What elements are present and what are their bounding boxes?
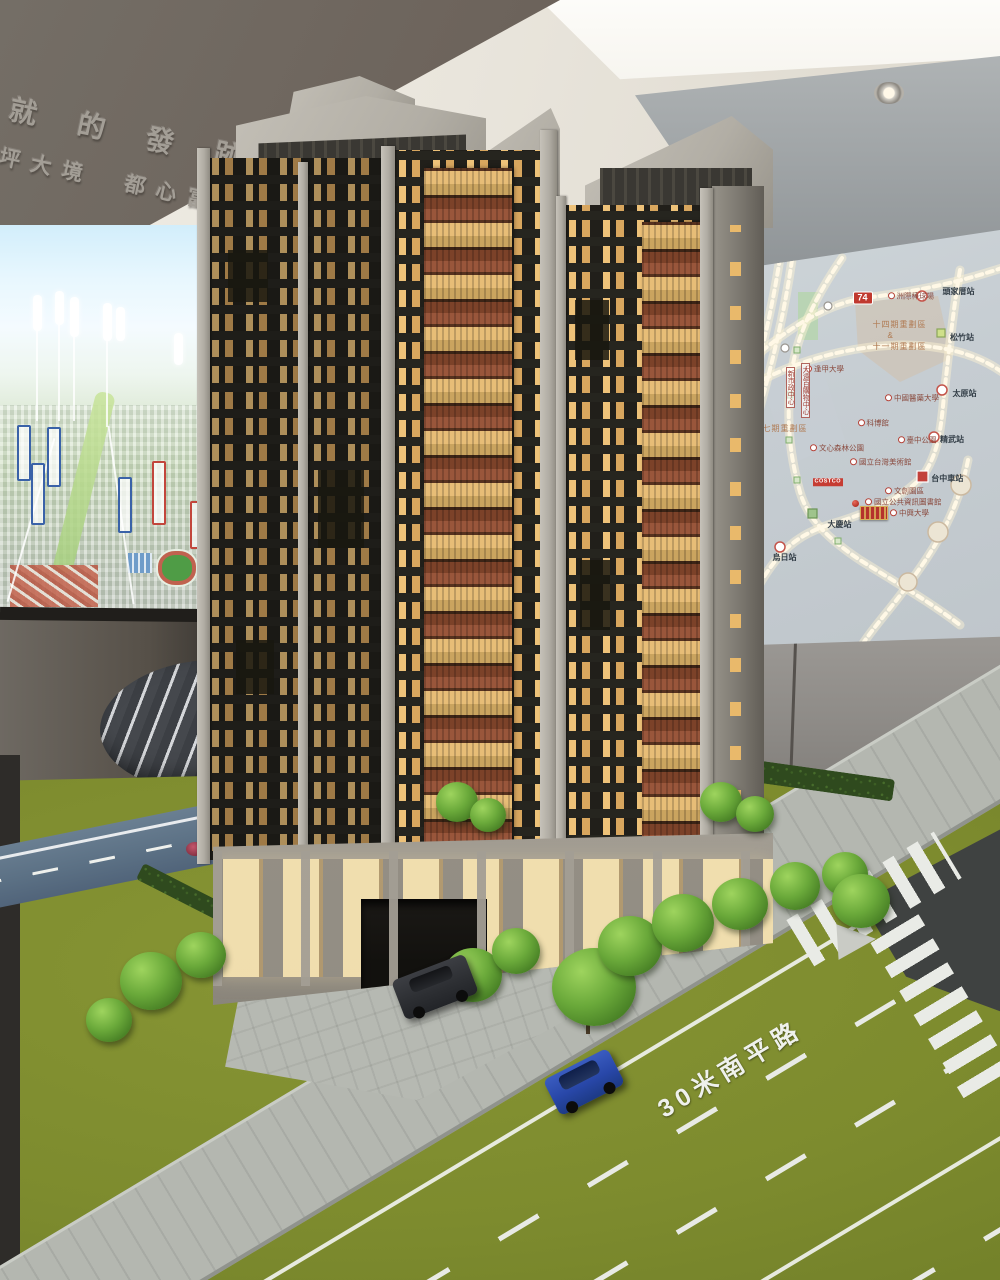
facade-fin xyxy=(540,130,557,864)
red-roof-blocks xyxy=(10,565,98,607)
map-label: 十四期重劃區 xyxy=(873,321,927,329)
map-label: 十一期重劃區 xyxy=(873,343,927,351)
side-window-column xyxy=(730,225,741,860)
map-label: 文心森林公園 xyxy=(810,444,864,452)
transit-map-lightbox: 74洲際棒球場頭家厝站十四期重劃區&十一期重劃區松竹站逢甲大學新市政中心大遠百購… xyxy=(750,230,1000,645)
callout-label xyxy=(47,427,61,487)
sky-callout xyxy=(33,295,42,331)
tree xyxy=(86,998,132,1042)
map-label: 臺中公園 xyxy=(898,436,937,444)
map-label: 中興大學 xyxy=(890,509,929,517)
tree xyxy=(712,878,768,930)
facade-fin xyxy=(298,162,308,862)
sky-callout-stem xyxy=(73,337,75,421)
map-label: 松竹站 xyxy=(950,334,974,342)
callout-label xyxy=(17,425,31,481)
map-label: 74 xyxy=(853,292,873,305)
facade-fin xyxy=(556,196,566,872)
callout-label xyxy=(31,463,45,525)
unlit-windows xyxy=(575,300,609,360)
map-label: 科博館 xyxy=(858,419,890,427)
map-label: 洲際棒球場 xyxy=(888,293,935,301)
balcony-stack xyxy=(424,168,512,860)
project-site-marker xyxy=(860,506,888,520)
callout-label xyxy=(118,477,132,533)
map-label: 中國醫藥大學 xyxy=(885,394,939,402)
map-label: 大遠百購物中心 xyxy=(801,363,810,418)
tree xyxy=(176,932,226,978)
callout-label xyxy=(152,461,166,525)
unlit-windows xyxy=(228,250,268,302)
stadium-track xyxy=(158,551,196,585)
tree xyxy=(832,874,890,928)
tree xyxy=(736,796,774,832)
map-label: 文創園區 xyxy=(885,487,924,495)
unlit-windows xyxy=(318,470,364,548)
glass-building xyxy=(128,553,152,573)
ceiling-downlight xyxy=(874,82,904,104)
map-label: 七期重劃區 xyxy=(763,425,808,433)
sky-callout-stem xyxy=(58,325,60,421)
facade-fin xyxy=(197,148,210,864)
unlit-windows xyxy=(580,560,610,630)
tree xyxy=(492,928,540,974)
map-label: & xyxy=(888,332,894,340)
sales-gallery-photo: 就 的 發 跡 坪大境 都心富綠 xyxy=(0,0,1000,1280)
facade-fin xyxy=(381,146,395,864)
sky-callout-stem xyxy=(106,341,108,427)
facade-fin xyxy=(700,188,713,878)
map-label: 大慶站 xyxy=(828,521,852,529)
transit-map-labels: 74洲際棒球場頭家厝站十四期重劃區&十一期重劃區松竹站逢甲大學新市政中心大遠百購… xyxy=(750,230,1000,645)
sky-callout xyxy=(116,307,125,341)
map-label: 精武站 xyxy=(940,436,964,444)
lightbox-frame xyxy=(0,607,209,622)
map-label: 新市政中心 xyxy=(786,367,795,408)
map-label: COSTCO xyxy=(813,479,844,487)
map-label: 逢甲大學 xyxy=(805,365,844,373)
tree xyxy=(470,798,506,832)
unlit-windows xyxy=(236,640,274,694)
aerial-photo-lightbox xyxy=(0,225,207,617)
sky-callout xyxy=(174,333,183,365)
map-label: 太原站 xyxy=(953,390,977,398)
balcony-stack xyxy=(642,222,706,862)
map-label: 烏日站 xyxy=(773,554,797,562)
tree xyxy=(120,952,182,1010)
map-label: 國立台灣美術館 xyxy=(850,458,912,466)
tree xyxy=(652,894,714,952)
tree xyxy=(770,862,820,910)
map-label: 國立公共資訊圖書館 xyxy=(865,498,942,506)
project-pin xyxy=(852,500,859,507)
sky-callout xyxy=(103,303,112,341)
sky-callout xyxy=(70,297,79,337)
sky-callout xyxy=(55,291,64,325)
map-label: 頭家厝站 xyxy=(943,288,975,296)
base-edge xyxy=(0,755,20,1280)
map-label: 台中車站 xyxy=(931,475,963,483)
sky-callout-stem xyxy=(36,331,38,421)
